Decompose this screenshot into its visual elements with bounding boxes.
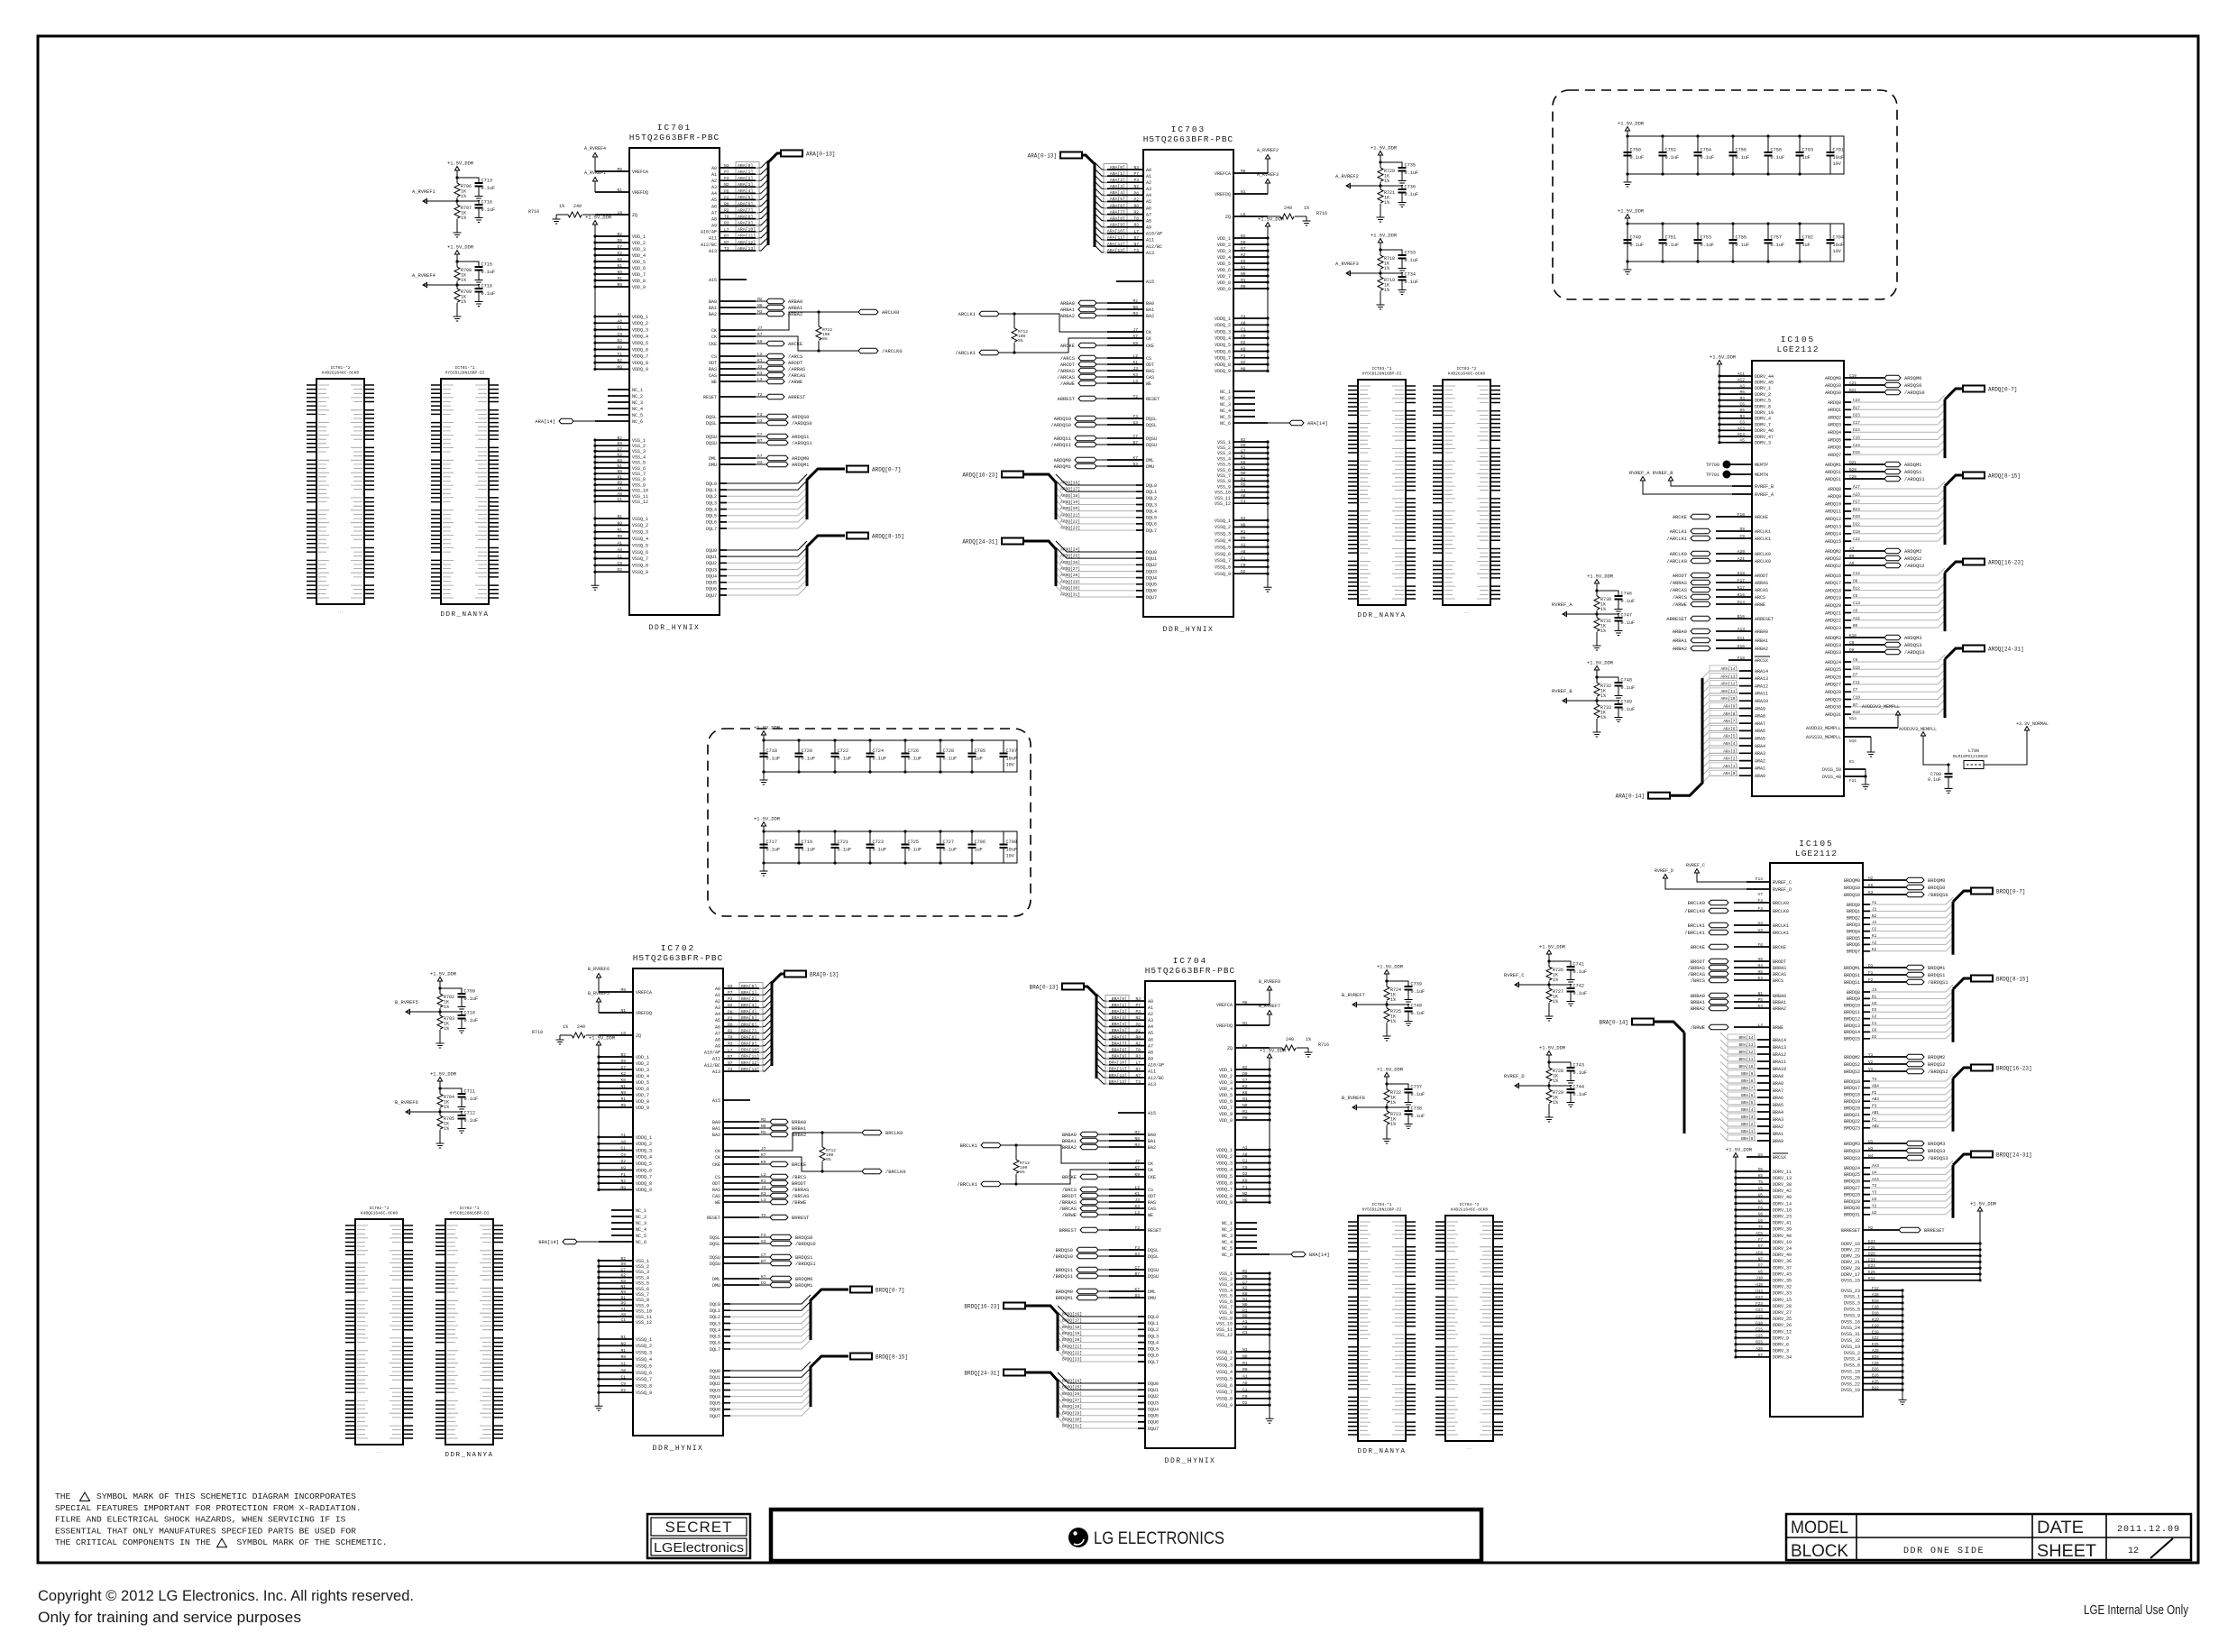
svg-text:ARA5: ARA5 [1755, 737, 1765, 742]
svg-text:0.1uF: 0.1uF [766, 848, 781, 853]
svg-text:BA2: BA2 [1146, 314, 1154, 319]
svg-text:0.1uF: 0.1uF [1621, 620, 1636, 626]
svg-text:VDD_4: VDD_4 [636, 1074, 649, 1079]
svg-text:BRDQ[0-7]: BRDQ[0-7] [876, 1287, 904, 1293]
svg-text:BRBA2: BRBA2 [1691, 1006, 1705, 1012]
svg-text:C751: C751 [1665, 235, 1676, 241]
svg-text:K1: K1 [1872, 934, 1877, 939]
svg-text:DQU1: DQU1 [1146, 556, 1157, 562]
svg-text:C715: C715 [481, 262, 492, 268]
svg-text:A8: A8 [1146, 218, 1151, 224]
svg-text:VSSQ_2: VSSQ_2 [1216, 1356, 1233, 1362]
svg-text:AA3: AA3 [1872, 1164, 1879, 1169]
svg-text:DVSS_50: DVSS_50 [1822, 767, 1841, 773]
svg-text:ARDQ30: ARDQ30 [1825, 705, 1841, 711]
svg-text:K2: K2 [1872, 948, 1877, 952]
svg-text:BRDQM1: BRDQM1 [1056, 1296, 1073, 1301]
svg-text:CK: CK [1146, 330, 1151, 335]
svg-text:A1: A1 [1242, 1145, 1248, 1151]
svg-text:N9: N9 [620, 1090, 626, 1096]
svg-text:DDRV_49: DDRV_49 [1773, 1253, 1792, 1258]
svg-text:ARDQ[24-31]: ARDQ[24-31] [962, 538, 998, 545]
svg-text:/ARRAS: /ARRAS [1670, 581, 1687, 586]
svg-text:/ARCAS: /ARCAS [1670, 588, 1687, 593]
svg-text:0.1uF: 0.1uF [481, 291, 496, 297]
svg-text:FILRE AND ELECTRICAL SHOCK HAZ: FILRE AND ELECTRICAL SHOCK HAZARDS, WHEN… [55, 1515, 346, 1525]
svg-text:DVSS_24: DVSS_24 [1841, 1326, 1860, 1331]
svg-text:K8: K8 [1241, 460, 1246, 465]
svg-text:ARDQM2: ARDQM2 [1904, 549, 1921, 555]
svg-text:WE: WE [1148, 1213, 1153, 1218]
svg-text:VDDQ_4: VDDQ_4 [636, 1155, 652, 1161]
svg-text:240: 240 [1284, 206, 1292, 211]
svg-text:VREFCA: VREFCA [1215, 171, 1231, 177]
svg-text:A9: A9 [1148, 1057, 1153, 1062]
svg-text:VDDQ_4: VDDQ_4 [632, 335, 648, 340]
svg-text:ARA2: ARA2 [1755, 758, 1765, 764]
svg-text:A8: A8 [715, 1037, 720, 1042]
svg-text:BRODT: BRODT [1691, 959, 1706, 965]
svg-text:A1: A1 [617, 541, 622, 546]
svg-text:DQSU: DQSU [706, 435, 717, 440]
svg-text:0.1uF: 0.1uF [943, 848, 958, 853]
svg-text:DDR_NANYA: DDR_NANYA [440, 611, 489, 619]
svg-text:BRDQS0: BRDQS0 [1844, 893, 1860, 898]
svg-text:VDDQ_4: VDDQ_4 [1215, 336, 1231, 342]
svg-text:A6: A6 [715, 1024, 720, 1030]
svg-text:ODT: ODT [709, 361, 717, 366]
svg-text:N1: N1 [620, 1335, 626, 1340]
svg-text:DVSS_1: DVSS_1 [1844, 1295, 1860, 1300]
svg-text:ARCKE: ARCKE [1755, 515, 1768, 520]
svg-text:ODT: ODT [712, 1181, 720, 1187]
svg-text:ARA[0-13]: ARA[0-13] [1028, 152, 1057, 159]
svg-text:D2: D2 [1872, 1035, 1877, 1040]
svg-text:0.1uF: 0.1uF [1411, 1114, 1426, 1119]
svg-text:D2: D2 [1241, 569, 1246, 574]
svg-text:DDRV_28: DDRV_28 [1841, 1266, 1860, 1271]
svg-text:CK: CK [1148, 1168, 1153, 1173]
svg-text:DVSS_20: DVSS_20 [1841, 1375, 1860, 1381]
svg-text:CAS: CAS [1148, 1207, 1156, 1212]
svg-text:B2: B2 [1241, 234, 1246, 239]
svg-text:VDDQ_8: VDDQ_8 [636, 1181, 652, 1187]
svg-text:VDD_2: VDD_2 [636, 1061, 649, 1067]
svg-text:VSS_12: VSS_12 [632, 500, 648, 505]
svg-text:C9: C9 [620, 1381, 626, 1387]
svg-text:BRA7: BRA7 [1773, 1088, 1783, 1094]
svg-text:B_RVREF5: B_RVREF5 [395, 1000, 418, 1005]
svg-text:K2: K2 [617, 251, 622, 256]
svg-text:C709: C709 [464, 989, 475, 995]
svg-text:DDR_NANYA: DDR_NANYA [1357, 1448, 1406, 1455]
svg-text:ARBA2: ARBA2 [788, 312, 802, 317]
svg-text:R1: R1 [620, 1097, 626, 1102]
svg-text:C17: C17 [1853, 421, 1860, 426]
svg-text:BRDQ5: BRDQ5 [1847, 936, 1860, 941]
svg-text:VDDQ_2: VDDQ_2 [1215, 323, 1231, 328]
svg-text:DMU: DMU [712, 1283, 720, 1289]
svg-text:A1: A1 [1241, 314, 1246, 319]
svg-text:ICT03-*1: ICT03-*1 [1371, 366, 1391, 372]
svg-text:/BRDQS0: /BRDQS0 [795, 1242, 816, 1247]
svg-text:/ARWE: /ARWE [1060, 381, 1075, 387]
svg-text:BRDQ31: BRDQ31 [1844, 1213, 1860, 1218]
svg-text:DDRV_33: DDRV_33 [1773, 1291, 1792, 1297]
svg-text:NC_1: NC_1 [1220, 390, 1231, 395]
svg-text:C9: C9 [1241, 563, 1246, 568]
svg-text:ARBA0: ARBA0 [1755, 629, 1768, 635]
svg-text:M9: M9 [620, 1185, 626, 1190]
svg-text:DQU7: DQU7 [1146, 595, 1157, 601]
svg-text:N9: N9 [1242, 1103, 1248, 1108]
svg-text:DQSU: DQSU [1148, 1268, 1159, 1273]
svg-text:ARDQS1: ARDQS1 [1825, 470, 1841, 475]
svg-text:BRDQM2: BRDQM2 [1844, 1055, 1860, 1060]
svg-text:ICT03-*2: ICT03-*2 [1456, 366, 1476, 372]
svg-text:BRCLK0: BRCLK0 [885, 1131, 903, 1136]
svg-text:DQL6: DQL6 [710, 1341, 720, 1346]
svg-text:VSS_8: VSS_8 [632, 477, 646, 482]
svg-text:BRDQ6: BRDQ6 [1847, 942, 1860, 948]
svg-text:BRDQS3: BRDQS3 [1844, 1149, 1860, 1154]
svg-text:N9: N9 [620, 1289, 626, 1295]
svg-text:0.1uF: 0.1uF [1701, 243, 1715, 248]
svg-text:/ARCLK1: /ARCLK1 [955, 351, 976, 356]
svg-text:1%: 1% [461, 278, 466, 283]
svg-text:RESET: RESET [1146, 397, 1160, 402]
svg-text:BA1: BA1 [1148, 1139, 1156, 1144]
svg-text:10V: 10V [1833, 249, 1842, 254]
svg-text:D9: D9 [1241, 240, 1246, 245]
svg-text:ARODT: ARODT [1673, 574, 1688, 579]
svg-text:VDDQ_7: VDDQ_7 [636, 1175, 652, 1180]
svg-text:10V: 10V [1006, 763, 1015, 768]
svg-text:BRA12: BRA12 [1773, 1052, 1786, 1058]
svg-text:R716: R716 [1316, 211, 1327, 216]
svg-text:A12: A12 [1853, 617, 1860, 621]
svg-text:R9: R9 [1242, 1314, 1248, 1319]
svg-text:1%: 1% [461, 299, 466, 305]
svg-text:BRDQS3: BRDQS3 [1844, 1156, 1860, 1161]
svg-text:ARDQ5: ARDQ5 [1828, 437, 1841, 443]
svg-text:BRBA1: BRBA1 [1773, 1000, 1786, 1005]
svg-text:BLM18PG121SN1D: BLM18PG121SN1D [1953, 754, 1988, 759]
svg-text:+1.5V_DDR: +1.5V_DDR [447, 245, 474, 251]
svg-text:VSS_9: VSS_9 [632, 482, 646, 488]
svg-text:0.1uF: 0.1uF [1573, 991, 1588, 996]
svg-text:DQL3: DQL3 [706, 500, 717, 506]
svg-text:VDDQ_5: VDDQ_5 [636, 1161, 652, 1167]
svg-text:BRREST: BRREST [792, 1216, 810, 1221]
svg-text:B2: B2 [1241, 437, 1246, 443]
svg-text:VSS_10: VSS_10 [632, 489, 648, 494]
svg-text:BA2: BA2 [1148, 1145, 1156, 1151]
svg-text:BRRESET: BRRESET [1924, 1228, 1945, 1234]
svg-text:G7: G7 [1242, 1078, 1248, 1083]
svg-text:D2: D2 [617, 338, 622, 344]
svg-text:DQL7: DQL7 [706, 527, 717, 532]
svg-text:DQL5: DQL5 [1148, 1347, 1159, 1353]
svg-text:DQL1: DQL1 [1148, 1321, 1159, 1326]
svg-text:L8: L8 [1242, 1043, 1248, 1049]
svg-text:ARA11: ARA11 [1755, 692, 1768, 697]
svg-text:DDRV_3: DDRV_3 [1773, 1349, 1789, 1354]
svg-text:ARBA0: ARBA0 [1060, 301, 1075, 307]
svg-text:L8: L8 [1241, 212, 1246, 217]
svg-text:A10/AP: A10/AP [1146, 232, 1162, 237]
svg-text:DQU0: DQU0 [706, 548, 717, 554]
svg-text:DQU4: DQU4 [1148, 1407, 1159, 1412]
svg-text:HY5CB128N16BP-DI: HY5CB128N16BP-DI [1361, 372, 1401, 377]
svg-text:F13: F13 [1756, 876, 1764, 882]
svg-text:1%: 1% [1306, 1037, 1311, 1042]
svg-text:A9: A9 [715, 1044, 720, 1050]
svg-text:G7: G7 [620, 1065, 626, 1070]
svg-text:ZQ: ZQ [1227, 1046, 1233, 1051]
svg-text:DQL5: DQL5 [710, 1335, 720, 1340]
svg-text:CS: CS [1146, 356, 1151, 362]
svg-text:D2: D2 [620, 1159, 626, 1164]
svg-text:C9: C9 [617, 332, 622, 337]
svg-text:NC_4: NC_4 [632, 407, 643, 412]
svg-text:SECRET: SECRET [665, 1519, 733, 1536]
svg-text:C728: C728 [943, 748, 954, 754]
svg-text:A15: A15 [1148, 1111, 1156, 1116]
svg-text:BRDQ16: BRDQ16 [1844, 1079, 1860, 1085]
svg-text:DQL6: DQL6 [1146, 522, 1157, 528]
svg-text:A1: A1 [1146, 174, 1151, 179]
svg-text:NC_1: NC_1 [632, 388, 643, 393]
svg-text:DQSL: DQSL [1146, 423, 1157, 428]
svg-text:D2: D2 [1242, 1171, 1248, 1177]
svg-text:BRDQ0: BRDQ0 [1847, 903, 1860, 908]
svg-text:BRBA0: BRBA0 [1062, 1133, 1077, 1138]
svg-text:DDRV_22: DDRV_22 [1841, 1248, 1860, 1253]
svg-text:/ARDQS2: /ARDQS2 [1904, 564, 1925, 569]
svg-text:RESET: RESET [1148, 1228, 1161, 1234]
svg-text:ARDQM0: ARDQM0 [1054, 458, 1071, 463]
svg-text:A7: A7 [1148, 1043, 1153, 1049]
svg-text:A13: A13 [709, 249, 717, 254]
svg-text:ARDQS1: ARDQS1 [792, 435, 809, 440]
svg-text:BRDQ14: BRDQ14 [1844, 1030, 1860, 1035]
svg-text:R9: R9 [620, 1103, 626, 1108]
svg-text:DDR_NANYA: DDR_NANYA [1357, 612, 1406, 619]
svg-text:VSSQ_8: VSSQ_8 [636, 1384, 652, 1390]
svg-text:BRA1: BRA1 [1773, 1132, 1783, 1137]
svg-text:CK: CK [715, 1155, 720, 1161]
svg-text:VDD_1: VDD_1 [636, 1055, 649, 1060]
svg-text:NC_3: NC_3 [632, 400, 643, 406]
svg-text:VDD_9: VDD_9 [636, 1106, 649, 1111]
svg-text:ARCKE: ARCKE [1673, 515, 1687, 520]
svg-text:DDRV_4: DDRV_4 [1755, 417, 1771, 422]
svg-text:BRDQS2: BRDQS2 [1844, 1069, 1860, 1075]
svg-text:DDRV_16: DDRV_16 [1841, 1242, 1860, 1247]
svg-text:ARDQ1: ARDQ1 [1828, 408, 1841, 413]
svg-text:0.1uF: 0.1uF [838, 757, 852, 762]
svg-text:DDR_HYNIX: DDR_HYNIX [1165, 1457, 1216, 1465]
svg-text:ARA4: ARA4 [1755, 744, 1765, 749]
svg-text:BRBA1: BRBA1 [1691, 1000, 1705, 1005]
svg-text:BRBA0: BRBA0 [1773, 994, 1786, 999]
svg-text:VDD_5: VDD_5 [636, 1080, 649, 1086]
svg-text:DML: DML [712, 1277, 720, 1282]
svg-text:DQL6: DQL6 [706, 520, 717, 526]
svg-text:D9: D9 [617, 238, 622, 243]
svg-text:DQL7: DQL7 [710, 1347, 720, 1353]
svg-text:VSS_4: VSS_4 [1219, 1288, 1233, 1293]
svg-text:ARA[14]: ARA[14] [1307, 421, 1328, 427]
svg-text:DVSS_9: DVSS_9 [1844, 1313, 1860, 1318]
svg-text:ARDQ18: ARDQ18 [1825, 588, 1841, 593]
svg-text:A15: A15 [1146, 280, 1154, 285]
svg-text:BRRESET: BRRESET [1841, 1228, 1860, 1234]
svg-text:ARDQM1: ARDQM1 [1904, 463, 1921, 468]
svg-text:K9: K9 [1241, 347, 1246, 353]
svg-text:BRA9: BRA9 [1773, 1074, 1783, 1079]
svg-text:VDD_6: VDD_6 [636, 1087, 649, 1092]
svg-text:VDDQ_5: VDDQ_5 [1215, 343, 1231, 348]
svg-text:D9: D9 [1242, 1071, 1248, 1077]
svg-text:0.1uF: 0.1uF [1411, 1011, 1426, 1016]
svg-text:CK: CK [1148, 1161, 1153, 1167]
svg-text:BRDQS0: BRDQS0 [795, 1235, 812, 1241]
svg-text:VSSQ_5: VSSQ_5 [636, 1363, 652, 1369]
svg-text:DQL1: DQL1 [1146, 490, 1157, 495]
svg-text:D22: D22 [1853, 523, 1860, 528]
svg-text:N2: N2 [1242, 1191, 1248, 1197]
svg-text:N1: N1 [1241, 265, 1246, 271]
svg-text:VSS_11: VSS_11 [632, 494, 648, 500]
svg-text:DVSS_32: DVSS_32 [1841, 1338, 1860, 1344]
svg-text:C719: C719 [802, 840, 812, 845]
svg-text:R1: R1 [1242, 1109, 1248, 1115]
svg-text:10uF: 10uF [1006, 757, 1017, 762]
svg-text:D2: D2 [1241, 340, 1246, 345]
svg-text:DDRV_19: DDRV_19 [1773, 1240, 1792, 1245]
svg-text:BRA0: BRA0 [1773, 1139, 1783, 1144]
svg-text:DQU6: DQU6 [1148, 1420, 1159, 1426]
svg-text:N1: N1 [1241, 189, 1246, 195]
svg-text:F1: F1 [1242, 1185, 1248, 1190]
svg-text:DQU1: DQU1 [1148, 1388, 1159, 1393]
svg-text:IC703: IC703 [1171, 124, 1206, 134]
svg-text:AA4: AA4 [1872, 1178, 1879, 1182]
svg-text:DQU4: DQU4 [1146, 575, 1157, 581]
svg-text:DQL0: DQL0 [1146, 483, 1157, 489]
svg-text:1%: 1% [1390, 1019, 1396, 1024]
svg-text:/BRDQS3: /BRDQS3 [1928, 1156, 1948, 1161]
svg-text:DQL0: DQL0 [710, 1302, 720, 1308]
svg-text:VDD_6: VDD_6 [1217, 268, 1231, 273]
svg-text:1%: 1% [1553, 1100, 1558, 1106]
svg-text:BRDQ3: BRDQ3 [1847, 922, 1860, 928]
svg-text:+1.5V_DDR: +1.5V_DDR [1710, 355, 1737, 361]
svg-text:VDDQ_9: VDDQ_9 [636, 1188, 652, 1193]
svg-text:ARDQM2: ARDQM2 [1825, 549, 1841, 555]
svg-text:RAS: RAS [1146, 369, 1154, 374]
svg-text:VDDQ_9: VDDQ_9 [632, 367, 648, 372]
svg-text:0.1uF: 0.1uF [1411, 1092, 1426, 1097]
svg-text:VDDQ_7: VDDQ_7 [1216, 1188, 1233, 1193]
svg-text:B2: B2 [617, 232, 622, 237]
svg-text:H5TQ2G63BFR-PBC: H5TQ2G63BFR-PBC [629, 133, 720, 142]
svg-text:VDDQ_7: VDDQ_7 [632, 354, 648, 360]
svg-text:5%: 5% [822, 336, 828, 342]
svg-text:R9: R9 [620, 1301, 626, 1307]
svg-text:DQU0: DQU0 [1146, 550, 1157, 555]
svg-text:VSSQ_1: VSSQ_1 [636, 1337, 652, 1343]
svg-text:C716: C716 [481, 200, 492, 206]
svg-text:DDRV_13: DDRV_13 [1773, 1176, 1792, 1181]
svg-text:ARDQ7: ARDQ7 [1828, 453, 1841, 458]
svg-text:DQL4: DQL4 [710, 1327, 720, 1333]
svg-text:0.1uF: 0.1uF [1621, 599, 1636, 604]
svg-text:1%: 1% [1553, 999, 1558, 1005]
svg-text:VDDQ_8: VDDQ_8 [1215, 363, 1231, 368]
svg-text:B2: B2 [1242, 1065, 1248, 1070]
svg-text:DDRV_29: DDRV_29 [1841, 1253, 1860, 1259]
svg-text:/BRCS: /BRCS [1062, 1188, 1077, 1193]
svg-text:DVSS_6: DVSS_6 [1844, 1363, 1860, 1369]
svg-text:/ARCLK0: /ARCLK0 [1666, 559, 1687, 564]
svg-text:ARDQ21: ARDQ21 [1825, 610, 1841, 616]
svg-text:AB4: AB4 [1872, 1084, 1879, 1088]
svg-text:WE: WE [711, 380, 717, 385]
svg-text:VSS_6: VSS_6 [636, 1287, 649, 1292]
svg-text:BRDQ26: BRDQ26 [1844, 1179, 1860, 1185]
svg-text:BA0: BA0 [1148, 1133, 1156, 1138]
svg-text:ARDQ16: ARDQ16 [1825, 574, 1841, 579]
svg-text:R710: R710 [532, 1030, 543, 1035]
svg-text:BRDQ27: BRDQ27 [1844, 1186, 1860, 1191]
svg-text:DQU0: DQU0 [710, 1369, 720, 1374]
svg-text:ARA3: ARA3 [1755, 751, 1765, 757]
svg-text:C712: C712 [464, 1111, 475, 1116]
svg-text:NC_1: NC_1 [636, 1208, 646, 1214]
svg-text:+1.5V_DDR: +1.5V_DDR [1371, 234, 1398, 239]
svg-text:F1: F1 [1241, 353, 1246, 359]
svg-text:ARBA0: ARBA0 [1673, 629, 1687, 635]
svg-text:A1: A1 [1241, 543, 1246, 548]
svg-text:A_RVREF4: A_RVREF4 [584, 146, 606, 151]
svg-text:B_RVREF6: B_RVREF6 [588, 967, 610, 972]
svg-text:0.1uF: 0.1uF [1665, 155, 1680, 161]
svg-text:DQU6: DQU6 [706, 587, 717, 592]
svg-text:/BRCAS: /BRCAS [1059, 1207, 1077, 1212]
svg-text:CK: CK [1146, 336, 1151, 342]
svg-text:N15: N15 [1849, 739, 1857, 744]
svg-text:A1: A1 [617, 486, 622, 491]
svg-text:A8: A8 [1242, 1325, 1248, 1330]
svg-text:BRA11: BRA11 [1773, 1060, 1786, 1065]
svg-text:BRCLK1: BRCLK1 [960, 1143, 977, 1149]
svg-text:1%: 1% [444, 1026, 449, 1032]
svg-text:DDRV_35: DDRV_35 [1773, 1279, 1792, 1284]
svg-text:A1: A1 [1242, 1374, 1248, 1380]
svg-text:C706: C706 [975, 840, 986, 845]
svg-text:ARREST: ARREST [788, 395, 806, 400]
svg-text:IC702-*1: IC702-*1 [459, 1206, 479, 1211]
svg-text:VSS_11: VSS_11 [1215, 496, 1231, 501]
svg-text:A_RVREF4: A_RVREF4 [412, 273, 435, 279]
svg-text:D9: D9 [620, 1262, 626, 1267]
svg-text:A8: A8 [620, 1312, 626, 1317]
svg-text:DDRV_5: DDRV_5 [1755, 399, 1771, 404]
svg-text:DVSS_23: DVSS_23 [1841, 1289, 1860, 1294]
